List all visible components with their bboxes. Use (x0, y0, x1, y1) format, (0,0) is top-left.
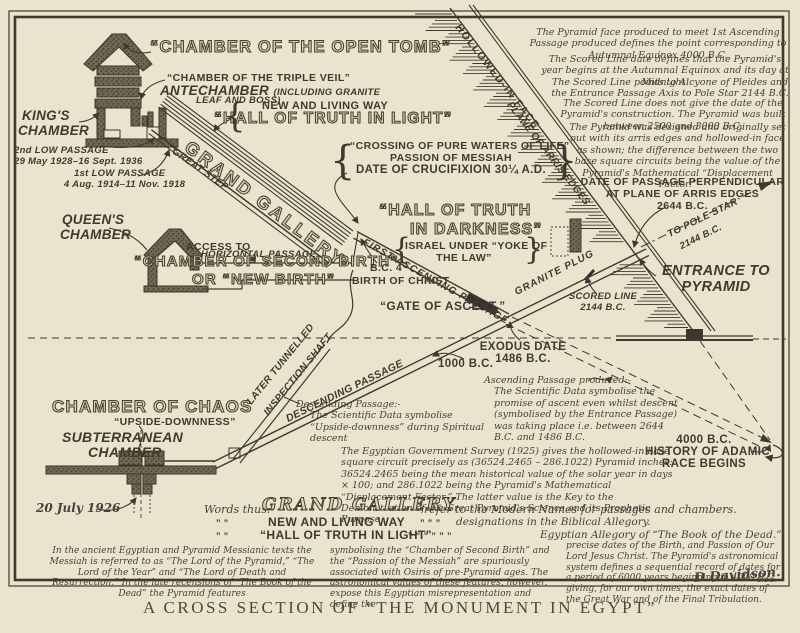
label-chamber-of-chaos: CHAMBER OF CHAOS (52, 397, 253, 417)
label-birth-of-christ: BIRTH OF CHRIST (352, 275, 450, 287)
brace-new-living-way: { (224, 96, 246, 136)
legend-row2-ditto-mid: ” ” ” (420, 518, 441, 528)
label-1st-low-passage-dates: 4 Aug. 1914–11 Nov. 1918 (64, 179, 185, 190)
label-kings-chamber-2: CHAMBER (18, 123, 89, 138)
entrance-line2: PYRAMID (652, 279, 780, 295)
plate-caption: A CROSS SECTION OF “THE MONUMENT IN EGYP… (0, 598, 800, 618)
note-ascending-produced: Ascending Passage produced:- The Scienti… (484, 375, 686, 443)
legend-row2-rest: designations in the Biblical Allegory. (456, 516, 651, 529)
scored-line-2: 2144 B.C. (562, 302, 644, 313)
footer-paragraph-1: In the ancient Egyptian and Pyramid Mess… (46, 546, 318, 600)
label-access-to: ACCESS TO (186, 241, 251, 253)
label-chamber-open-tomb: “CHAMBER OF THE OPEN TOMB” (150, 38, 451, 57)
pyramid-cross-section-plate: “CHAMBER OF THE OPEN TOMB” “CHAMBER OF T… (0, 0, 800, 633)
legend-row2-ditto-left: ” ” (216, 518, 229, 528)
face-foot-block (686, 329, 703, 339)
label-kings-chamber-1: KING'S (22, 108, 70, 123)
label-2nd-low-passage: 2nd LOW PASSAGE (14, 145, 109, 156)
brace-israel-right: } (524, 232, 543, 267)
label-bc4: B.C. 4 (370, 262, 402, 274)
crossing-line3: DATE OF CRUCIFIXION 30¼ A.D. (350, 164, 552, 176)
brace-crossing-left: { (330, 138, 355, 184)
note-scored-points: The Scored Line points to Alcyone of Ple… (551, 77, 789, 100)
label-or-new-birth: OR “NEW BIRTH” (192, 271, 335, 288)
asc-note-body: The Scientific Data symbolise the promis… (484, 386, 686, 443)
label-gate-of-ascent: “GATE OF ASCENT.” (380, 299, 505, 313)
label-scored-line: SCORED LINE 2144 B.C. (562, 291, 644, 313)
scored-line-1: SCORED LINE (562, 291, 644, 302)
label-1st-low-passage: 1st LOW PASSAGE (74, 168, 165, 179)
label-1000-bc: 1000 B.C. (438, 358, 493, 370)
crossing-line2: PASSION OF MESSIAH (350, 152, 552, 164)
israel-line2: THE LAW” (405, 252, 523, 264)
antechamber-paren1: (INCLUDING GRANITE (274, 87, 381, 98)
label-queens-chamber-1: QUEEN'S (62, 212, 124, 227)
legend-row3-ditto-mid: ” ” ” ” ” ” (408, 531, 452, 541)
subterranean-floor-slab (46, 466, 216, 474)
label-subterranean-2: CHAMBER (88, 444, 162, 460)
label-chamber-second-birth: “CHAMBER OF SECOND BIRTH” (134, 253, 399, 270)
desc-note-body: The Scientific Data symbolise “Upside-do… (296, 410, 496, 444)
label-hall-of-truth-darkness-1: “HALL OF TRUTH (379, 202, 532, 220)
label-hall-of-truth-darkness-2: IN DARKNESS” (410, 221, 543, 239)
signature-initials: D.C.D. (757, 577, 777, 584)
label-2nd-low-passage-dates: 29 May 1928–16 Sept. 1936 (14, 156, 142, 167)
label-israel-yoke: ISRAEL UNDER “YOKE OF THE LAW” (405, 240, 523, 264)
legend-row3-ditto-left: ” ” (216, 531, 229, 541)
crossing-line1: “CROSSING OF PURE WATERS OF LIFE” (350, 140, 552, 152)
exodus-line1: EXODUS DATE (478, 341, 568, 353)
israel-line1: ISRAEL UNDER “YOKE OF (405, 240, 523, 252)
asc-note-title: Ascending Passage produced:- (484, 375, 686, 386)
date-perp-line3: 2644 B.C. (575, 200, 790, 212)
label-crossing-pure-waters: “CROSSING OF PURE WATERS OF LIFE” PASSIO… (350, 140, 552, 176)
note-designed: The Pyramid was designed and originally … (567, 122, 788, 190)
label-queens-chamber-2: CHAMBER (60, 227, 131, 242)
label-subterranean-1: SUBTERRANEAN (62, 429, 183, 445)
note-descending: Descending Passage:- The Scientific Data… (296, 399, 496, 445)
label-hall-of-truth-in-light: “HALL OF TRUTH IN LIGHT” (214, 110, 453, 128)
entrance-line1: ENTRANCE TO (652, 263, 780, 279)
legend-new-and-living-way: NEW AND LIVING WAY (268, 515, 405, 529)
label-20-july-1926: 20 July 1926 (36, 501, 120, 515)
label-entrance-to-pyramid: ENTRANCE TO PYRAMID (652, 263, 780, 295)
label-upside-downness: “UPSIDE-DOWNNESS” (114, 416, 236, 428)
base-line (28, 336, 786, 340)
legend-row1-rest: refer to the Modern Names for passages a… (424, 503, 737, 516)
legend-hall-of-truth-in-light: “HALL OF TRUTH IN LIGHT” (260, 528, 432, 542)
desc-note-title: Descending Passage:- (296, 399, 496, 410)
legend-row3-rest: Egyptian Allegory of “The Book of the De… (540, 529, 782, 542)
